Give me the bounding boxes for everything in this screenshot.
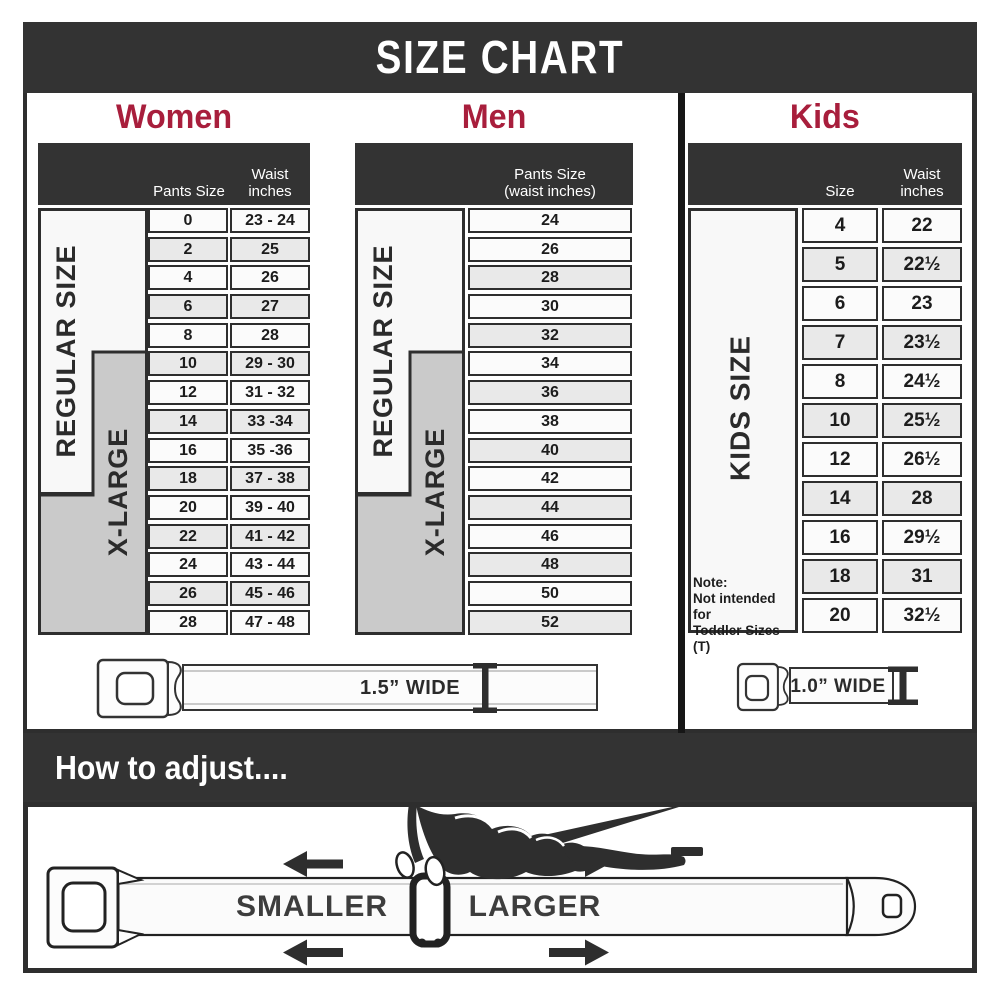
waist-cell: 32½ <box>882 598 962 633</box>
size-cell: 2 <box>148 237 228 262</box>
kids-col-size: Size <box>802 183 878 200</box>
men-regular-label: REGULAR SIZE <box>368 244 398 457</box>
waist-cell: 47 - 48 <box>230 610 310 635</box>
size-cell: 12 <box>148 380 228 405</box>
women-size-table: Pants Size Waist inches REGULAR SIZE X-L… <box>38 143 310 637</box>
table-row: 2645 - 46 <box>148 581 310 606</box>
women-col-waist: Waist inches <box>230 166 310 200</box>
women-rows: 023 - 242254266278281029 - 301231 - 3214… <box>148 208 310 635</box>
size-cell: 28 <box>148 610 228 635</box>
smaller-label: SMALLER <box>236 890 388 923</box>
women-fit-range-graphic: REGULAR SIZE X-LARGE <box>38 208 148 635</box>
size-cell: 7 <box>802 325 878 360</box>
size-cell: 18 <box>148 466 228 491</box>
waist-cell: 43 - 44 <box>230 552 310 577</box>
men-rows: 242628303234363840424446485052 <box>468 208 632 635</box>
table-row: 2847 - 48 <box>148 610 310 635</box>
size-cell: 24 <box>148 552 228 577</box>
table-row: 48 <box>468 552 632 577</box>
adjust-illustration: SMALLER LARGER <box>23 802 977 973</box>
kids-col-waist: Waist inches <box>882 166 962 200</box>
size-cell: 24 <box>468 208 632 233</box>
men-heading: Men <box>355 96 633 138</box>
table-row: 1226½ <box>802 442 962 477</box>
table-row: 1629½ <box>802 520 962 555</box>
waist-cell: 23 <box>882 286 962 321</box>
table-row: 24 <box>468 208 632 233</box>
table-row: 2443 - 44 <box>148 552 310 577</box>
table-row: 2039 - 40 <box>148 495 310 520</box>
waist-cell: 31 - 32 <box>230 380 310 405</box>
size-cell: 6 <box>802 286 878 321</box>
size-cell: 30 <box>468 294 632 319</box>
waist-cell: 28 <box>882 481 962 516</box>
men-fit-range-graphic: REGULAR SIZE X-LARGE <box>355 208 465 635</box>
size-chart-graphic: SIZE CHART Women Men Kids Pants Size Wai… <box>23 22 977 973</box>
waist-cell: 29 - 30 <box>230 351 310 376</box>
waist-cell: 23 - 24 <box>230 208 310 233</box>
size-cell: 14 <box>148 409 228 434</box>
men-col-pants-size: Pants Size (waist inches) <box>468 166 632 200</box>
size-cell: 4 <box>148 265 228 290</box>
table-row: 32 <box>468 323 632 348</box>
size-cell: 40 <box>468 438 632 463</box>
table-row: 50 <box>468 581 632 606</box>
women-regular-label: REGULAR SIZE <box>51 244 81 457</box>
kids-belt-width-label: 1.0” WIDE <box>790 676 885 697</box>
table-row: 44 <box>468 495 632 520</box>
size-cell: 0 <box>148 208 228 233</box>
table-row: 627 <box>148 294 310 319</box>
table-row: 023 - 24 <box>148 208 310 233</box>
table-row: 1433 -34 <box>148 409 310 434</box>
table-row: 36 <box>468 380 632 405</box>
waist-cell: 33 -34 <box>230 409 310 434</box>
size-cell: 32 <box>468 323 632 348</box>
waist-cell: 25½ <box>882 403 962 438</box>
table-row: 422 <box>802 208 962 243</box>
men-table-header: Pants Size (waist inches) <box>355 143 633 205</box>
section-divider <box>678 93 685 733</box>
waist-cell: 45 - 46 <box>230 581 310 606</box>
waist-cell: 22½ <box>882 247 962 282</box>
men-xlarge-label: X-LARGE <box>420 428 450 557</box>
kids-note: Note: Not intended for Toddler Sizes (T) <box>693 575 797 655</box>
adult-belt-graphic: 1.5” WIDE <box>88 650 608 728</box>
kids-table-header: Size Waist inches <box>688 143 962 205</box>
women-heading: Women <box>38 96 310 138</box>
waist-cell: 31 <box>882 559 962 594</box>
waist-cell: 24½ <box>882 364 962 399</box>
table-row: 623 <box>802 286 962 321</box>
belt-slider-icon <box>413 876 447 948</box>
seatbelt-buckle-icon <box>738 664 788 710</box>
men-size-table: Pants Size (waist inches) REGULAR SIZE X… <box>355 143 633 637</box>
table-row: 1231 - 32 <box>148 380 310 405</box>
adjust-band: How to adjust.... <box>23 733 977 802</box>
table-row: 723½ <box>802 325 962 360</box>
waist-cell: 37 - 38 <box>230 466 310 491</box>
size-cell: 5 <box>802 247 878 282</box>
table-row: 42 <box>468 466 632 491</box>
table-row: 30 <box>468 294 632 319</box>
larger-label: LARGER <box>469 890 602 923</box>
waist-cell: 25 <box>230 237 310 262</box>
table-row: 40 <box>468 438 632 463</box>
waist-cell: 28 <box>230 323 310 348</box>
adjust-heading: How to adjust.... <box>55 733 288 802</box>
women-table-header: Pants Size Waist inches <box>38 143 310 205</box>
waist-cell: 41 - 42 <box>230 524 310 549</box>
size-cell: 26 <box>468 237 632 262</box>
belt-end-tab-icon <box>847 878 915 935</box>
kids-rows: 422522½623723½824½1025½1226½14281629½183… <box>802 208 962 633</box>
size-cell: 44 <box>468 495 632 520</box>
size-cell: 28 <box>468 265 632 290</box>
table-row: 1635 -36 <box>148 438 310 463</box>
waist-cell: 29½ <box>882 520 962 555</box>
size-cell: 38 <box>468 409 632 434</box>
kids-heading: Kids <box>688 96 962 138</box>
title-band: SIZE CHART <box>23 22 977 93</box>
waist-cell: 22 <box>882 208 962 243</box>
waist-cell: 23½ <box>882 325 962 360</box>
size-cell: 50 <box>468 581 632 606</box>
table-row: 225 <box>148 237 310 262</box>
size-cell: 6 <box>148 294 228 319</box>
table-row: 1025½ <box>802 403 962 438</box>
table-row: 824½ <box>802 364 962 399</box>
size-cell: 8 <box>802 364 878 399</box>
size-cell: 10 <box>148 351 228 376</box>
size-cell: 26 <box>148 581 228 606</box>
size-cell: 14 <box>802 481 878 516</box>
size-cell: 4 <box>802 208 878 243</box>
size-cell: 16 <box>802 520 878 555</box>
adult-belt-width-label: 1.5” WIDE <box>360 677 460 699</box>
size-cell: 22 <box>148 524 228 549</box>
size-cell: 10 <box>802 403 878 438</box>
size-cell: 20 <box>802 598 878 633</box>
table-row: 1428 <box>802 481 962 516</box>
size-cell: 16 <box>148 438 228 463</box>
table-row: 1029 - 30 <box>148 351 310 376</box>
size-cell: 20 <box>148 495 228 520</box>
size-cell: 12 <box>802 442 878 477</box>
table-row: 522½ <box>802 247 962 282</box>
table-row: 46 <box>468 524 632 549</box>
size-cell: 18 <box>802 559 878 594</box>
waist-cell: 27 <box>230 294 310 319</box>
waist-cell: 26½ <box>882 442 962 477</box>
table-row: 828 <box>148 323 310 348</box>
table-row: 2241 - 42 <box>148 524 310 549</box>
table-row: 1837 - 38 <box>148 466 310 491</box>
table-row: 1831 <box>802 559 962 594</box>
table-row: 426 <box>148 265 310 290</box>
table-row: 2032½ <box>802 598 962 633</box>
table-row: 28 <box>468 265 632 290</box>
size-cell: 46 <box>468 524 632 549</box>
table-row: 38 <box>468 409 632 434</box>
kids-size-label: KIDS SIZE <box>724 335 755 481</box>
women-col-pants-size: Pants Size <box>148 183 230 200</box>
waist-cell: 39 - 40 <box>230 495 310 520</box>
table-row: 34 <box>468 351 632 376</box>
women-xlarge-label: X-LARGE <box>103 428 133 557</box>
size-cell: 36 <box>468 380 632 405</box>
strap-tip <box>671 847 703 856</box>
table-row: 52 <box>468 610 632 635</box>
table-row: 26 <box>468 237 632 262</box>
size-cell: 48 <box>468 552 632 577</box>
kids-fit-range-graphic: KIDS SIZE <box>688 208 798 633</box>
waist-cell: 35 -36 <box>230 438 310 463</box>
waist-cell: 26 <box>230 265 310 290</box>
size-cell: 52 <box>468 610 632 635</box>
size-cell: 34 <box>468 351 632 376</box>
seatbelt-buckle-icon <box>98 660 181 717</box>
size-cell: 8 <box>148 323 228 348</box>
size-cell: 42 <box>468 466 632 491</box>
kids-belt-graphic: 1.0” WIDE <box>733 658 943 714</box>
page-title: SIZE CHART <box>376 22 625 93</box>
kids-size-table: Size Waist inches KIDS SIZE Note: Not in… <box>688 143 962 635</box>
